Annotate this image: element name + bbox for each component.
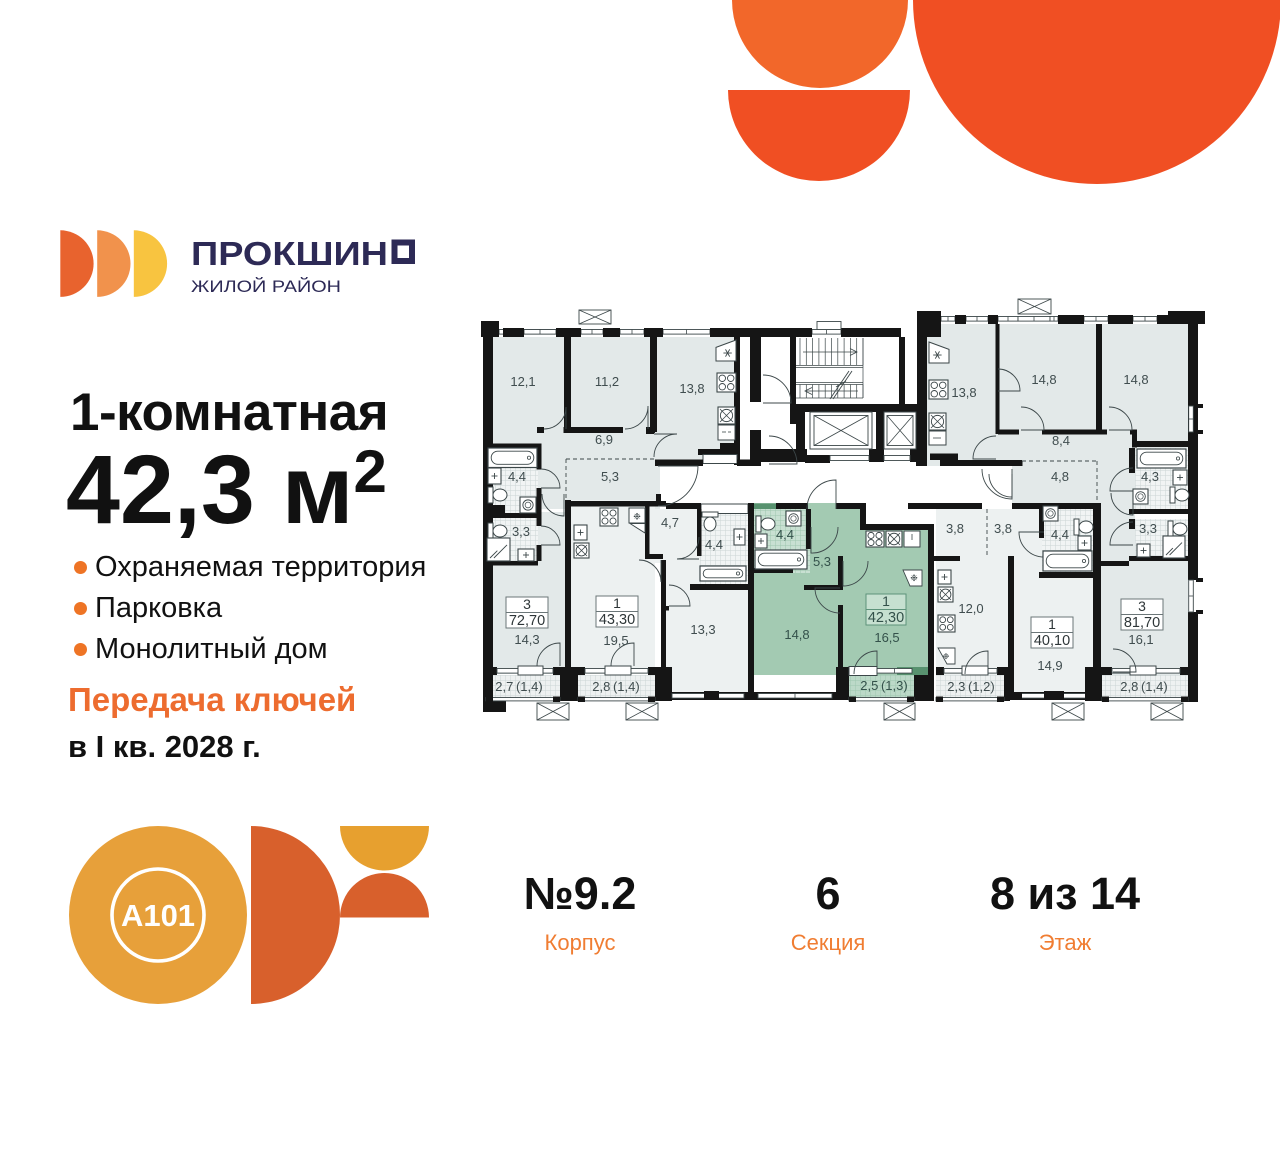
svg-text:3: 3 — [523, 596, 531, 612]
svg-text:2,5 (1,3): 2,5 (1,3) — [860, 678, 907, 693]
svg-text:1: 1 — [613, 595, 621, 611]
svg-text:4,7: 4,7 — [661, 515, 679, 530]
svg-text:3,8: 3,8 — [946, 521, 964, 536]
svg-text:8,4: 8,4 — [1052, 433, 1070, 448]
svg-text:40,10: 40,10 — [1034, 633, 1070, 649]
svg-text:3,3: 3,3 — [1139, 521, 1157, 536]
svg-text:1: 1 — [1048, 616, 1056, 632]
svg-text:14,8: 14,8 — [1031, 372, 1056, 387]
svg-text:81,70: 81,70 — [1124, 615, 1160, 631]
svg-text:4,4: 4,4 — [508, 469, 526, 484]
svg-text:❉: ❉ — [910, 573, 918, 583]
svg-text:19,5: 19,5 — [603, 633, 628, 648]
svg-text:43,30: 43,30 — [599, 612, 635, 628]
svg-text:❉: ❉ — [633, 512, 641, 522]
svg-text:11,2: 11,2 — [595, 374, 619, 389]
svg-text:5,3: 5,3 — [813, 554, 831, 569]
svg-text:14,3: 14,3 — [514, 632, 539, 647]
svg-text:4,4: 4,4 — [1051, 527, 1069, 542]
svg-text:16,5: 16,5 — [874, 630, 899, 645]
svg-text:42,30: 42,30 — [868, 610, 904, 626]
svg-text:3: 3 — [1138, 598, 1146, 614]
svg-text:13,3: 13,3 — [690, 622, 715, 637]
svg-text:4,8: 4,8 — [1051, 469, 1069, 484]
svg-text:3,3: 3,3 — [512, 524, 530, 539]
svg-text:4,4: 4,4 — [705, 537, 723, 552]
svg-text:13,8: 13,8 — [951, 385, 976, 400]
svg-text:2,8 (1,4): 2,8 (1,4) — [1120, 679, 1167, 694]
svg-text:❉: ❉ — [943, 652, 950, 661]
svg-text:5,3: 5,3 — [601, 469, 619, 484]
svg-text:72,70: 72,70 — [509, 613, 545, 629]
svg-text:16,1: 16,1 — [1128, 632, 1153, 647]
svg-text:4,4: 4,4 — [776, 527, 794, 542]
svg-text:14,8: 14,8 — [1123, 372, 1148, 387]
svg-text:12,1: 12,1 — [510, 374, 535, 389]
svg-text:3,8: 3,8 — [994, 521, 1012, 536]
svg-text:1: 1 — [882, 593, 890, 609]
svg-text:2,3 (1,2): 2,3 (1,2) — [947, 679, 994, 694]
svg-text:13,8: 13,8 — [679, 381, 704, 396]
svg-text:12,0: 12,0 — [958, 601, 983, 616]
svg-text:6,9: 6,9 — [595, 432, 613, 447]
svg-text:2,7 (1,4): 2,7 (1,4) — [495, 679, 542, 694]
svg-text:14,8: 14,8 — [784, 627, 809, 642]
svg-text:4,3: 4,3 — [1141, 469, 1159, 484]
svg-text:2,8 (1,4): 2,8 (1,4) — [592, 679, 639, 694]
svg-text:14,9: 14,9 — [1037, 658, 1062, 673]
